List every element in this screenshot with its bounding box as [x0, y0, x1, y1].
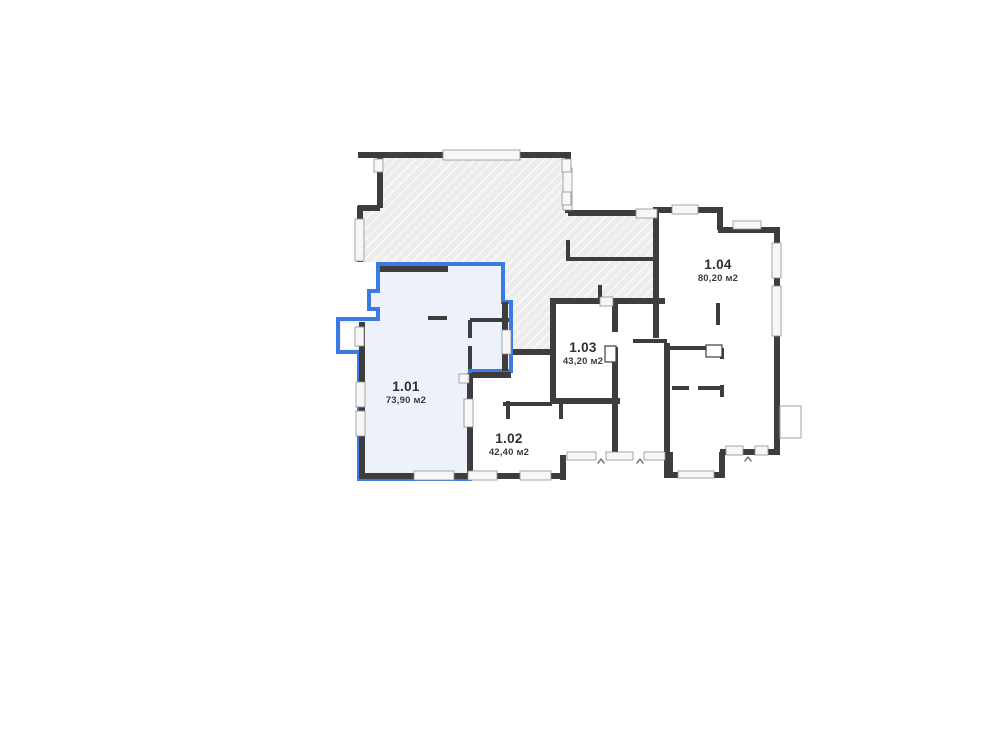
unit-1-03-label: 1.03 [569, 340, 597, 355]
floor-plan: 1.01 73,90 м2 1.02 42,40 м2 1.03 43,20 м… [0, 0, 1000, 750]
floor-plan-page: 1.01 73,90 м2 1.02 42,40 м2 1.03 43,20 м… [0, 0, 1000, 750]
unit-1-03-area: 43,20 м2 [563, 356, 603, 367]
unit-1-04-label: 1.04 [704, 257, 732, 272]
ramp-outline [780, 406, 801, 438]
unit-1-01-label: 1.01 [392, 379, 420, 394]
unit-1-02-area: 42,40 м2 [489, 447, 529, 458]
unit-1-04-area: 80,20 м2 [698, 273, 738, 284]
unit-1-04-region[interactable] [662, 214, 774, 449]
unit-1-01-area: 73,90 м2 [386, 395, 426, 406]
entrance-arrow-icon [637, 459, 643, 463]
unit-1-02-label: 1.02 [495, 431, 522, 446]
unit-1-01-porch [341, 323, 356, 349]
entrance-arrow-icon [745, 457, 751, 461]
